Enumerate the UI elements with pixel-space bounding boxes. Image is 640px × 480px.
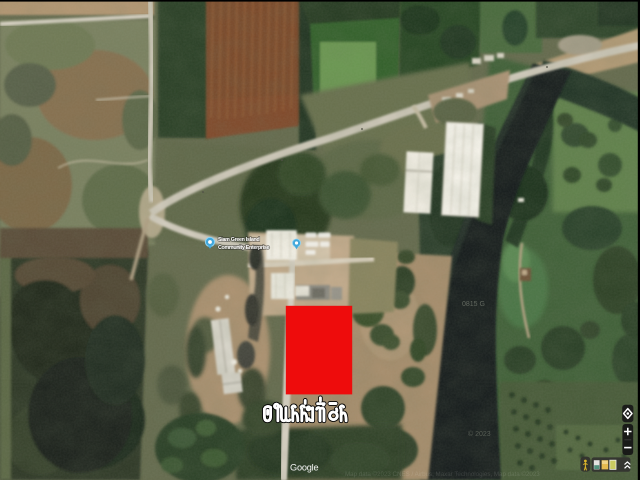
svg-text:Map data ©2023 CNES / Airbus,: Map data ©2023 CNES / Airbus, Maxar Tech… (345, 471, 540, 478)
svg-text:Community Enterprise: Community Enterprise (218, 245, 270, 251)
svg-text:© 2023: © 2023 (468, 430, 491, 438)
svg-text:Siam Green Island: Siam Green Island (218, 237, 260, 243)
svg-text:0815 G: 0815 G (462, 301, 485, 308)
svg-text:Google: Google (290, 462, 319, 472)
